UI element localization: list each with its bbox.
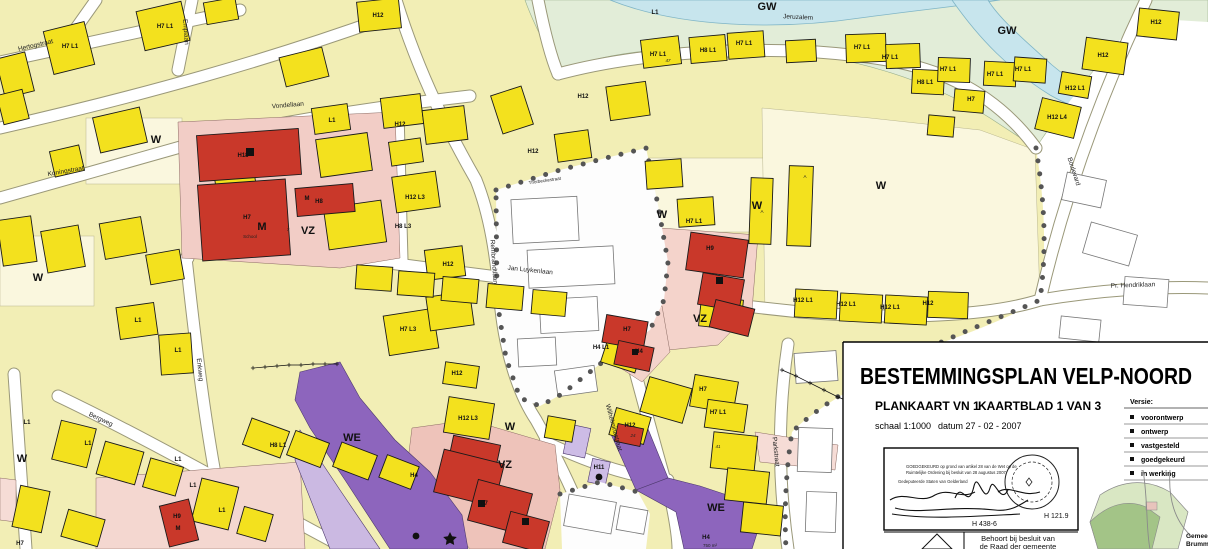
building-code-label: School [243,234,257,239]
building-code-label: H12 L3 [405,195,425,201]
building-code-label: H4 [702,535,710,541]
building-code-label: H7 L1 [710,410,727,416]
building-code-label: H12 L3 [458,416,478,422]
building-code-label: H12 [442,262,454,268]
building-code-label: H7 L1 [650,52,667,58]
scale-label: schaal 1:1000 [875,421,931,431]
building-code-label: H12 L1 [880,305,900,311]
building-code-label: H4 [635,349,643,355]
building-code-label: H12 L1 [836,302,856,308]
building-code-label: H4 L1 [593,345,610,351]
building-code-label: L1 [134,318,142,324]
building-code-label: H7 L1 [686,219,703,225]
building-code-label: M [176,526,181,532]
building-code-label: 47 [665,58,671,63]
plan-excluded-bottom [560,482,650,549]
building-code-label: H12 [451,371,463,377]
building-code-label: H11 [594,465,605,471]
building-code-label: H8 L1 [700,48,717,54]
building-code-label: 41 [715,444,721,449]
zone-code-label: VZ [301,225,315,237]
building-code-label: L1 [174,457,182,463]
building-code-label: H7 L1 [882,55,899,61]
inset-caption-line1: Gemeente [1186,533,1208,540]
building-code-label: H12 [372,13,384,19]
building-code-label: H12 [394,122,406,128]
zone-code-label: W [657,209,668,221]
sheet-number: KAARTBLAD 1 VAN 3 [978,399,1101,413]
building-code-label: H9 [706,246,714,252]
building-code-label: 750 m² [703,543,718,548]
building-code-label: H12 [527,149,539,155]
stamp-line3: Gedeputeerde Staten van Gelderland [898,479,968,484]
building-code-label: H18 [237,153,249,159]
building-code-label: L1 [174,348,182,354]
zone-code-label: WE [707,502,725,514]
zone-code-label: W [17,453,28,465]
building-code-label: H12 [922,301,934,307]
building-code-label: H7 [480,501,488,507]
building-code-label: H7 L1 [940,67,957,73]
approval-stamp: GOEDGEKEURD op grond van artikel 28 van … [884,448,1078,530]
building-code-label: L1 [189,483,197,489]
zoning-map-page: WWWWWWWVZVZVZWEWEGWGWMMMH18H7H8H9H9H7H4H… [0,0,1208,549]
building-code-label: L1 [651,10,659,16]
stamp-ref-right: H 121.9 [1044,513,1069,520]
inset-caption-line2: Brummen [1186,541,1208,548]
building-code-label: H7 L1 [987,72,1004,78]
versions-title: Versie: [1130,399,1153,406]
building-code-label: H8 L1 [270,443,287,449]
building-code-label: A [803,174,806,179]
building-code-label: H12 L1 [793,298,813,304]
building-code-label: H7 [623,327,631,333]
zone-code-label: GW [758,1,778,13]
building-code-label: M [305,196,310,202]
version-item: goedgekeurd [1141,457,1185,464]
zone-code-label: W [33,272,44,284]
dot-marker [596,474,603,481]
map-canvas[interactable]: WWWWWWWVZVZVZWEWEGWGWMMMH18H7H8H9H9H7H4H… [0,0,1208,549]
zone-code-label: W [505,421,516,433]
zone-code-label: W [876,180,887,192]
building-code-label: H12 L1 [1065,86,1085,92]
building-code-label: H12 L4 [1047,115,1067,121]
zone-code-label: VZ [693,313,707,325]
dot-marker [413,533,420,540]
building-code-label: H12 [624,423,636,429]
building-code-label: H8 L1 [917,80,934,86]
building-code-label: L1 [328,118,336,124]
version-item: vastgesteld [1141,443,1180,450]
building-code-label: H12 [1097,53,1109,59]
building-code-label: H7 [243,215,251,221]
building-code-label: H7 [967,97,975,103]
version-item: in werking [1141,471,1176,478]
sheet-label: PLANKAART VN 1 [875,399,980,413]
stamp-line2: Ruimtelijke Ordening bij besluit van 28 … [906,470,1007,475]
plan-title: BESTEMMINGSPLAN VELP-NOORD [860,363,1192,389]
zone-code-label: VZ [498,459,512,471]
zone-code-label: WE [343,432,361,444]
version-item: voorontwerp [1141,415,1183,422]
building-code-label: 24 [629,433,636,438]
building-code-label: H12 [577,94,589,100]
building-code-label: L1 [84,441,92,447]
building-code-label: H7 L1 [736,41,753,47]
building-code-label: A [760,209,763,214]
building-code-label: L1 [23,420,31,426]
building-code-label: H7 [16,541,24,547]
building-code-label: H8 [315,199,323,205]
building-code-label: H9 [173,514,181,520]
stamp-line1: GOEDGEKEURD op grond van artikel 28 van … [906,464,1017,469]
zone-code-label: W [151,134,162,146]
building-code-label: H4 [410,473,418,479]
building-code-label: H7 L1 [1015,67,1032,73]
stamp-ref-left: H 438-6 [972,521,997,528]
building-code-label: H12 [1150,20,1162,26]
building-code-label: H8 L3 [395,224,412,230]
building-code-label: H7 [699,387,707,393]
date-label: datum 27 - 02 - 2007 [938,421,1022,431]
title-block: BESTEMMINGSPLAN VELP-NOORD PLANKAART VN … [843,342,1208,549]
building-code-label: H7 L3 [400,327,417,333]
building-code-label: H7 L1 [854,45,871,51]
zone-code-label: M [257,221,266,233]
building-code-label: H7 L1 [157,24,174,30]
version-item: ontwerp [1141,429,1168,436]
building-code-label: H7 L1 [62,44,79,50]
council-note-line2: de Raad der gemeente [980,542,1057,549]
building-code-label: L1 [218,508,226,514]
zone-code-label: GW [998,25,1018,37]
